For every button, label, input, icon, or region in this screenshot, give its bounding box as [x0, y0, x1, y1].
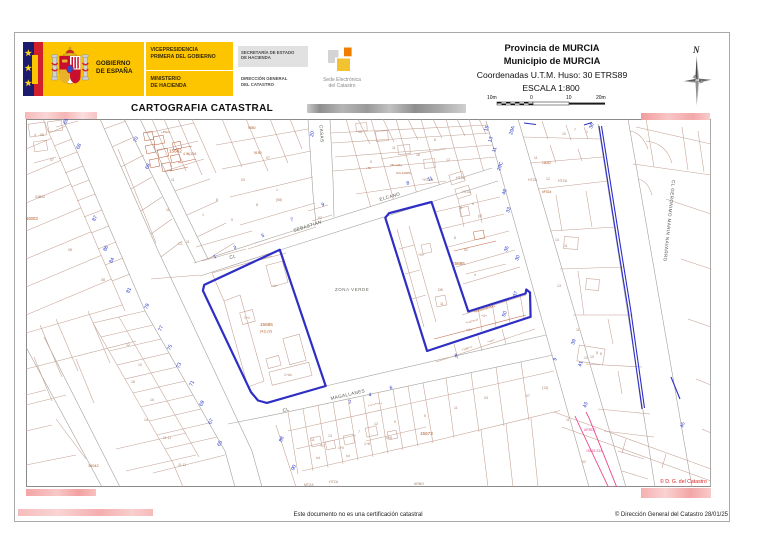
svg-text:N: N: [692, 45, 700, 55]
svg-text:4: 4: [368, 391, 372, 398]
svg-text:10: 10: [566, 95, 572, 101]
svg-text:14: 14: [555, 238, 559, 242]
svg-text:8: 8: [406, 180, 411, 187]
svg-text:8: 8: [454, 352, 458, 359]
svg-text:18: 18: [416, 153, 420, 157]
svg-text:C2: C2: [178, 242, 183, 246]
svg-text:(41) (9): (41) (9): [260, 329, 272, 333]
svg-text:08: 08: [68, 248, 72, 252]
svg-text:(58): (58): [276, 198, 282, 202]
svg-text:10: 10: [358, 130, 362, 134]
svg-text:7: 7: [574, 128, 576, 132]
svg-text:11: 11: [166, 208, 170, 212]
svg-text:15685: 15685: [260, 322, 273, 327]
svg-text:11: 11: [534, 156, 538, 160]
svg-text:(0): (0): [478, 214, 482, 218]
svg-text:10: 10: [590, 355, 594, 359]
svg-text:69: 69: [198, 399, 206, 407]
svg-text:20: 20: [309, 130, 316, 137]
svg-text:11 11: 11 11: [163, 436, 171, 440]
svg-text:TC: TC: [320, 444, 325, 448]
svg-text:20m: 20m: [596, 95, 606, 101]
svg-text:ARRD2: ARRD2: [584, 428, 596, 432]
svg-text:8: 8: [434, 138, 436, 142]
svg-text:41: 41: [577, 360, 584, 367]
svg-text:11: 11: [311, 438, 315, 442]
svg-text:1: 1: [586, 130, 588, 134]
svg-text:*+v+*: *+v+*: [487, 337, 496, 343]
svg-text:13: 13: [487, 135, 494, 142]
svg-text:29A: 29A: [508, 124, 517, 135]
svg-text:48: 48: [501, 188, 508, 195]
svg-text:+HTZA: +HTZA: [422, 178, 434, 182]
svg-text:9: 9: [394, 420, 396, 424]
svg-text:15682: 15682: [169, 148, 182, 153]
svg-text:03: 03: [484, 396, 488, 400]
svg-text:02: 02: [582, 460, 586, 464]
svg-text:10: 10: [138, 363, 142, 367]
svg-text:3: 3: [233, 244, 238, 251]
svg-text:DB: DB: [438, 288, 444, 292]
svg-text:79: 79: [143, 302, 151, 310]
svg-text:1: 1: [276, 188, 278, 192]
svg-text:11: 11: [392, 146, 396, 150]
svg-text:9190: 9190: [254, 151, 262, 155]
svg-text:77: 77: [157, 324, 165, 332]
svg-text:11: 11: [576, 328, 580, 332]
svg-text:8: 8: [600, 352, 602, 356]
svg-text:08: 08: [101, 278, 105, 282]
svg-text:43: 43: [582, 401, 589, 408]
svg-text:8: 8: [256, 203, 258, 207]
svg-text:03: 03: [241, 178, 245, 182]
svg-text:30: 30: [514, 254, 521, 261]
svg-text:11: 11: [491, 146, 498, 153]
svg-text:(1N,12005): (1N,12005): [396, 171, 411, 175]
svg-text:7: 7: [358, 430, 360, 434]
svg-text:9580: 9580: [248, 126, 256, 130]
svg-text:+A+: +A+: [466, 328, 472, 332]
svg-text:08: 08: [40, 133, 44, 137]
svg-text:07: 07: [50, 158, 54, 162]
svg-text:68: 68: [144, 162, 152, 170]
svg-text:10: 10: [584, 356, 588, 360]
svg-text:69: 69: [62, 119, 70, 125]
svg-text:+N+: +N+: [366, 166, 372, 170]
svg-text:10: 10: [562, 132, 566, 136]
svg-text:8: 8: [216, 198, 218, 202]
svg-text:18: 18: [131, 380, 135, 384]
svg-text:1+8: 1+8: [364, 442, 370, 446]
svg-text:#P02a: #P02a: [542, 190, 551, 194]
svg-text:86: 86: [102, 244, 110, 252]
svg-text:11 11: 11 11: [178, 463, 186, 467]
svg-text:4 IN(12A: 4 IN(12A: [183, 152, 197, 156]
svg-text:+a+: +a+: [272, 284, 278, 288]
svg-text:CL: CL: [229, 253, 237, 260]
svg-text:16062: 16062: [542, 161, 551, 165]
svg-text:04B02: 04B02: [35, 195, 45, 199]
svg-text:9: 9: [552, 356, 559, 361]
svg-text:HTZA: HTZA: [329, 480, 339, 484]
svg-text:11: 11: [440, 302, 444, 306]
svg-text:8: 8: [460, 206, 462, 210]
svg-text:HTZA: HTZA: [558, 179, 568, 183]
svg-text:*+xx*x+x*: *+xx*x+x*: [465, 317, 479, 325]
svg-text:2: 2: [348, 398, 352, 405]
svg-text:+4+: +4+: [481, 314, 487, 318]
svg-text:50: 50: [501, 310, 508, 317]
svg-text:15: 15: [483, 124, 490, 131]
svg-text:ZONA VERDE: ZONA VERDE: [335, 287, 369, 292]
svg-text:CASAS: CASAS: [319, 124, 325, 142]
svg-text:9: 9: [321, 201, 326, 208]
svg-text:81: 81: [125, 286, 133, 294]
svg-text:16003: 16003: [26, 216, 38, 221]
svg-text:lot: lot: [346, 454, 350, 458]
svg-text:13: 13: [557, 284, 561, 288]
svg-text:12: 12: [126, 343, 130, 347]
svg-text:9: 9: [472, 202, 474, 206]
svg-text:88: 88: [278, 435, 286, 443]
svg-text:9: 9: [231, 218, 233, 222]
svg-text:11: 11: [566, 418, 570, 422]
svg-text:SEBASTIAN: SEBASTIAN: [293, 219, 323, 233]
svg-text:75: 75: [166, 343, 174, 351]
svg-text:67: 67: [207, 417, 215, 425]
svg-text:68: 68: [75, 142, 83, 150]
svg-text:12: 12: [546, 177, 550, 181]
svg-text:1: 1: [456, 278, 458, 282]
svg-text:87: 87: [91, 214, 99, 222]
svg-text:07: 07: [526, 394, 530, 398]
svg-text:HTZA: HTZA: [456, 176, 466, 180]
svg-text:12: 12: [374, 422, 378, 426]
svg-text:7: 7: [290, 216, 295, 223]
svg-text:HTZA: HTZA: [528, 178, 538, 182]
svg-text:6: 6: [389, 384, 393, 391]
svg-text:8: 8: [454, 236, 456, 240]
svg-text:(4h+12k): (4h+12k): [390, 163, 402, 167]
svg-text:11: 11: [454, 406, 458, 410]
svg-text:16042: 16042: [88, 464, 99, 468]
svg-text:14: 14: [144, 418, 148, 422]
svg-text:16: 16: [150, 398, 154, 402]
svg-text:90: 90: [290, 463, 298, 471]
svg-text:+PG2+: +PG2+: [161, 130, 171, 134]
svg-text:65: 65: [216, 439, 224, 447]
svg-text:9: 9: [370, 160, 372, 164]
svg-text:15673: 15673: [420, 431, 433, 436]
svg-text:73: 73: [175, 361, 183, 369]
svg-text:lot: lot: [316, 456, 320, 460]
svg-text:1+Av: 1+Av: [284, 373, 292, 377]
svg-text:4: 4: [474, 273, 476, 277]
svg-text:(13): (13): [542, 386, 548, 390]
svg-text:84: 84: [108, 256, 116, 264]
svg-text:4+8: 4+8: [386, 436, 392, 440]
svg-text:13: 13: [328, 434, 332, 438]
svg-text:1+0: 1+0: [338, 446, 344, 450]
svg-text:+N+: +N+: [418, 253, 425, 257]
svg-text:15685: 15685: [452, 261, 465, 266]
svg-text:1+1: 1+1: [244, 316, 250, 320]
svg-text:07: 07: [266, 156, 270, 160]
svg-text:HTZA: HTZA: [462, 190, 472, 194]
svg-text:CL GERONIMO MARIN NAVARRO: CL GERONIMO MARIN NAVARRO: [662, 179, 676, 261]
svg-text:1: 1: [202, 213, 204, 217]
svg-text:11: 11: [171, 178, 175, 182]
svg-text:70: 70: [132, 135, 140, 143]
svg-text:02: 02: [464, 248, 468, 252]
svg-text:MTZA: MTZA: [304, 483, 314, 487]
svg-text:8: 8: [596, 351, 598, 355]
svg-text:10m: 10m: [487, 95, 497, 101]
svg-text:11: 11: [186, 240, 190, 244]
svg-text:0: 0: [530, 95, 533, 101]
svg-text:11: 11: [564, 244, 568, 248]
svg-text:12: 12: [446, 158, 450, 162]
svg-text:71: 71: [188, 379, 196, 387]
svg-text:5: 5: [424, 414, 426, 418]
svg-text:39: 39: [570, 338, 577, 345]
svg-text:+1v0+*+: +1v0+*+: [461, 344, 473, 351]
svg-text:45: 45: [679, 421, 686, 428]
svg-text:ARBO: ARBO: [414, 482, 424, 486]
svg-text:5: 5: [261, 232, 266, 239]
svg-text:4: 4: [34, 133, 36, 137]
svg-text:15518 234: 15518 234: [586, 449, 602, 453]
